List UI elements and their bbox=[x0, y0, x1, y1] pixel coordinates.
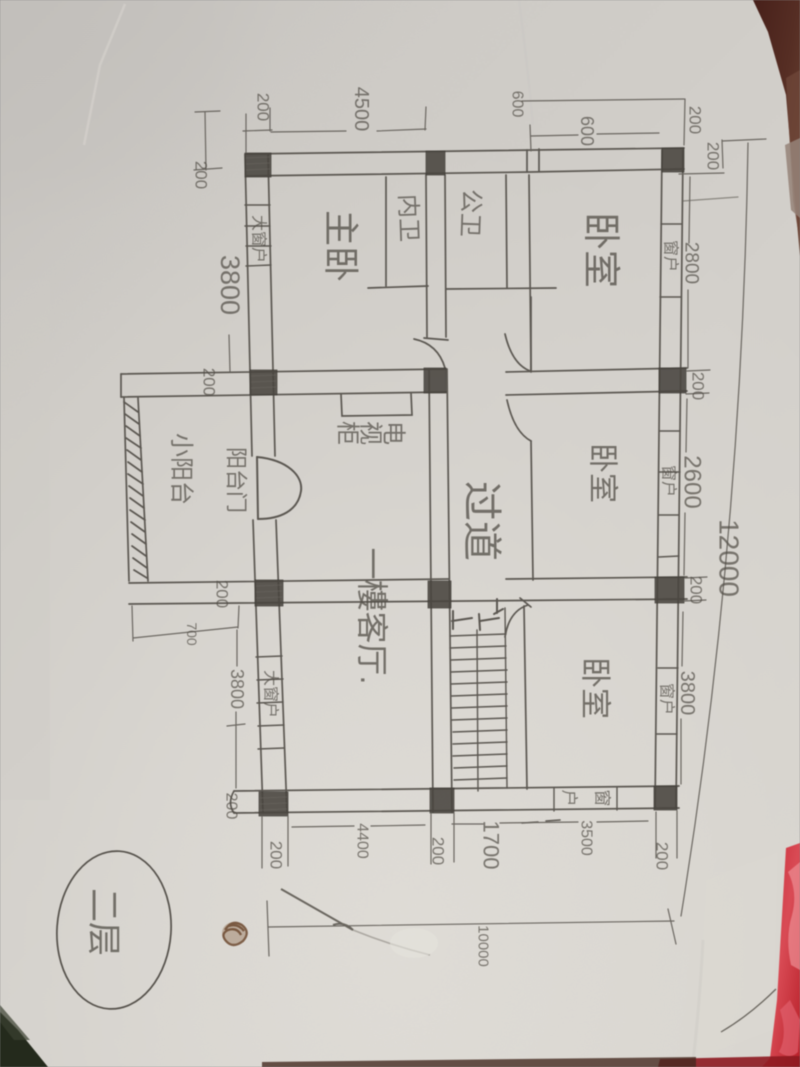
svg-text:柜: 柜 bbox=[334, 421, 361, 445]
svg-text:4400: 4400 bbox=[354, 823, 371, 859]
svg-text:600: 600 bbox=[577, 116, 597, 146]
svg-text:200: 200 bbox=[254, 93, 273, 121]
svg-text:内卫: 内卫 bbox=[394, 194, 423, 243]
svg-text:1700: 1700 bbox=[479, 821, 504, 870]
svg-text:大窗户: 大窗户 bbox=[250, 215, 268, 263]
svg-text:4500: 4500 bbox=[350, 87, 372, 132]
svg-text:600: 600 bbox=[509, 91, 526, 118]
svg-text:200: 200 bbox=[687, 576, 706, 604]
svg-text:3800: 3800 bbox=[676, 671, 698, 716]
svg-text:700: 700 bbox=[184, 622, 200, 646]
svg-text:200: 200 bbox=[686, 106, 705, 134]
svg-text:200: 200 bbox=[704, 142, 723, 170]
svg-text:窗: 窗 bbox=[593, 790, 612, 807]
svg-text:主卧: 主卧 bbox=[321, 210, 362, 282]
svg-text:200: 200 bbox=[429, 837, 448, 865]
svg-text:户: 户 bbox=[560, 790, 579, 807]
svg-text:200: 200 bbox=[223, 793, 240, 820]
svg-text:200: 200 bbox=[213, 580, 232, 608]
svg-text:200: 200 bbox=[267, 841, 286, 869]
svg-text:200: 200 bbox=[192, 161, 211, 189]
svg-text:大窗户: 大窗户 bbox=[262, 670, 280, 718]
svg-text:卧室: 卧室 bbox=[586, 443, 619, 503]
svg-text:窗户: 窗户 bbox=[658, 683, 676, 715]
svg-text:3800: 3800 bbox=[215, 255, 245, 315]
svg-text:窗户: 窗户 bbox=[662, 240, 680, 272]
svg-text:3800: 3800 bbox=[227, 669, 247, 709]
svg-text:200: 200 bbox=[200, 368, 219, 396]
svg-text:阳台门: 阳台门 bbox=[224, 447, 249, 513]
svg-text:小阳台: 小阳台 bbox=[168, 433, 195, 505]
svg-text:3500: 3500 bbox=[578, 820, 595, 856]
svg-text:二层: 二层 bbox=[84, 888, 122, 956]
svg-text:过道: 过道 bbox=[459, 481, 503, 561]
svg-text:卧室: 卧室 bbox=[578, 657, 613, 719]
svg-text:200: 200 bbox=[689, 372, 708, 400]
svg-text:公卫: 公卫 bbox=[456, 189, 485, 238]
svg-text:10000: 10000 bbox=[475, 925, 492, 967]
svg-text:窗户: 窗户 bbox=[660, 465, 678, 497]
svg-text:200: 200 bbox=[653, 842, 672, 870]
svg-text:2600: 2600 bbox=[679, 455, 706, 508]
svg-text:12000: 12000 bbox=[714, 519, 745, 597]
svg-text:卧室: 卧室 bbox=[579, 212, 621, 288]
svg-text:2800: 2800 bbox=[681, 242, 702, 284]
svg-text:一樓客厅.: 一樓客厅. bbox=[354, 548, 390, 685]
